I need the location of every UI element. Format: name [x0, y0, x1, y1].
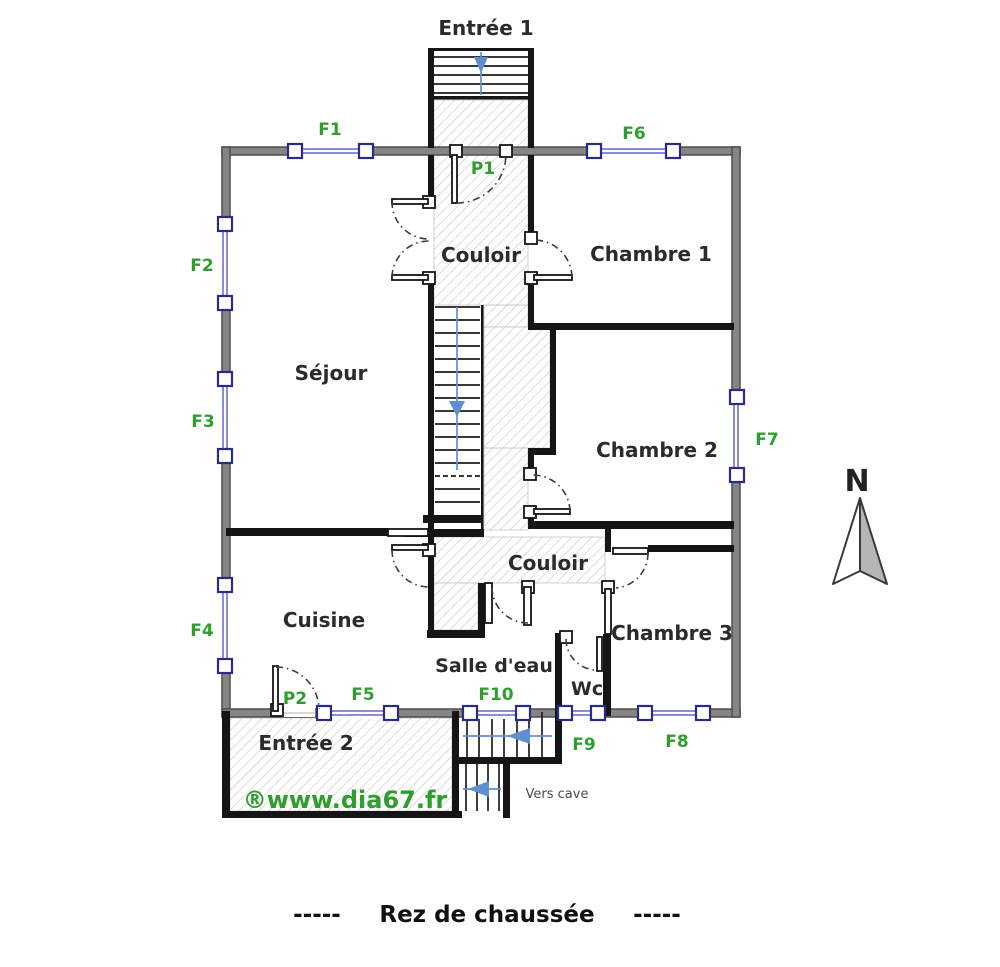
- window-f9: F9: [558, 706, 605, 755]
- cellar-upper-arrow-icon: [507, 728, 530, 744]
- cellar-lower-arrow-icon: [468, 781, 489, 797]
- north-arrow-left-icon: [833, 498, 860, 584]
- window-f3: F3: [191, 372, 232, 463]
- door-sejour-double: [392, 196, 435, 284]
- room-label-couloir-haut: Couloir: [441, 243, 521, 267]
- door-label-p1: P1: [471, 159, 495, 179]
- floor-plan-page: Vers cave F1 F6 F2 F3: [0, 0, 1000, 967]
- room-label-couloir-bas: Couloir: [508, 551, 588, 575]
- window-label-f2: F2: [190, 256, 213, 276]
- window-f6: F6: [587, 124, 680, 158]
- door-cuisine: [388, 529, 435, 587]
- door-chambre2: [524, 468, 570, 518]
- title-dashes-left: -----: [293, 902, 341, 928]
- stair-down-arrow-icon: [449, 401, 465, 417]
- room-label-wc: Wc: [571, 678, 603, 700]
- room-label-sejour: Séjour: [295, 361, 368, 385]
- title-dashes-right: -----: [633, 902, 681, 928]
- window-f2: F2: [190, 217, 232, 310]
- cellar-note: Vers cave: [526, 787, 589, 802]
- entrance1-steps: [434, 52, 528, 100]
- window-f10: F10: [463, 685, 530, 720]
- door-label-p2: P2: [283, 689, 307, 709]
- window-label-f3: F3: [191, 412, 214, 432]
- window-f7: F7: [730, 390, 779, 482]
- window-label-f8: F8: [665, 732, 688, 752]
- window-f4: F4: [190, 578, 232, 673]
- window-label-f4: F4: [190, 621, 214, 641]
- window-label-f1: F1: [318, 120, 341, 140]
- window-label-f9: F9: [572, 735, 595, 755]
- room-label-chambre1: Chambre 1: [590, 242, 712, 266]
- watermark: ®www.dia67.fr: [243, 786, 448, 814]
- main-staircase: [435, 307, 480, 502]
- window-f5: F5: [317, 685, 398, 720]
- room-label-cuisine: Cuisine: [283, 608, 365, 632]
- room-label-chambre3: Chambre 3: [611, 621, 733, 645]
- window-f8: F8: [638, 706, 710, 752]
- window-label-f7: F7: [755, 430, 778, 450]
- door-wc: [560, 631, 602, 671]
- title-text: Rez de chaussée: [379, 902, 594, 928]
- door-salle-deau: [485, 581, 534, 625]
- room-label-chambre2: Chambre 2: [596, 438, 718, 462]
- window-f1: F1: [288, 120, 373, 158]
- entrance-down-arrow-icon: [474, 57, 488, 73]
- door-chambre1: [525, 232, 572, 284]
- window-label-f6: F6: [622, 124, 645, 144]
- floor-title: ----- Rez de chaussée -----: [293, 902, 681, 928]
- north-arrow-right-icon: [860, 498, 887, 584]
- north-label: N: [844, 464, 869, 499]
- door-p2: P2: [271, 666, 319, 717]
- north-arrow: N: [833, 464, 887, 584]
- window-label-f5: F5: [351, 685, 374, 705]
- room-label-entree1: Entrée 1: [438, 16, 533, 40]
- window-label-f10: F10: [478, 685, 513, 705]
- floor-plan-canvas: Vers cave F1 F6 F2 F3: [0, 0, 1000, 967]
- room-label-entree2: Entrée 2: [258, 731, 353, 755]
- room-label-salle-deau: Salle d'eau: [435, 655, 553, 677]
